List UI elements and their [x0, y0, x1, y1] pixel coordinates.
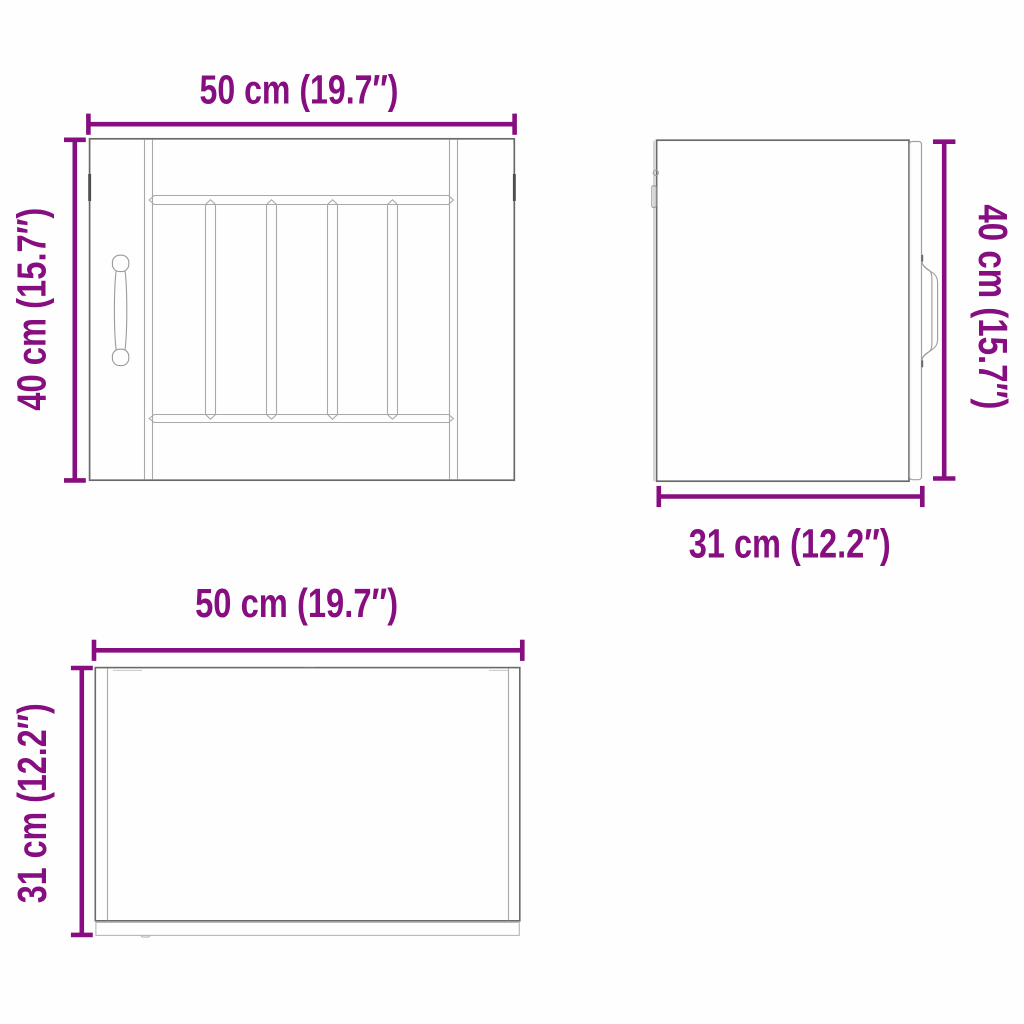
svg-text:50 cm (19.7″): 50 cm (19.7″): [195, 580, 398, 626]
svg-text:31 cm (12.2″): 31 cm (12.2″): [689, 521, 891, 567]
svg-text:40 cm (15.7″): 40 cm (15.7″): [970, 204, 1016, 409]
svg-text:31 cm (12.2″): 31 cm (12.2″): [9, 703, 55, 903]
svg-text:50 cm (19.7″): 50 cm (19.7″): [200, 66, 399, 112]
svg-text:40 cm (15.7″): 40 cm (15.7″): [9, 208, 55, 411]
